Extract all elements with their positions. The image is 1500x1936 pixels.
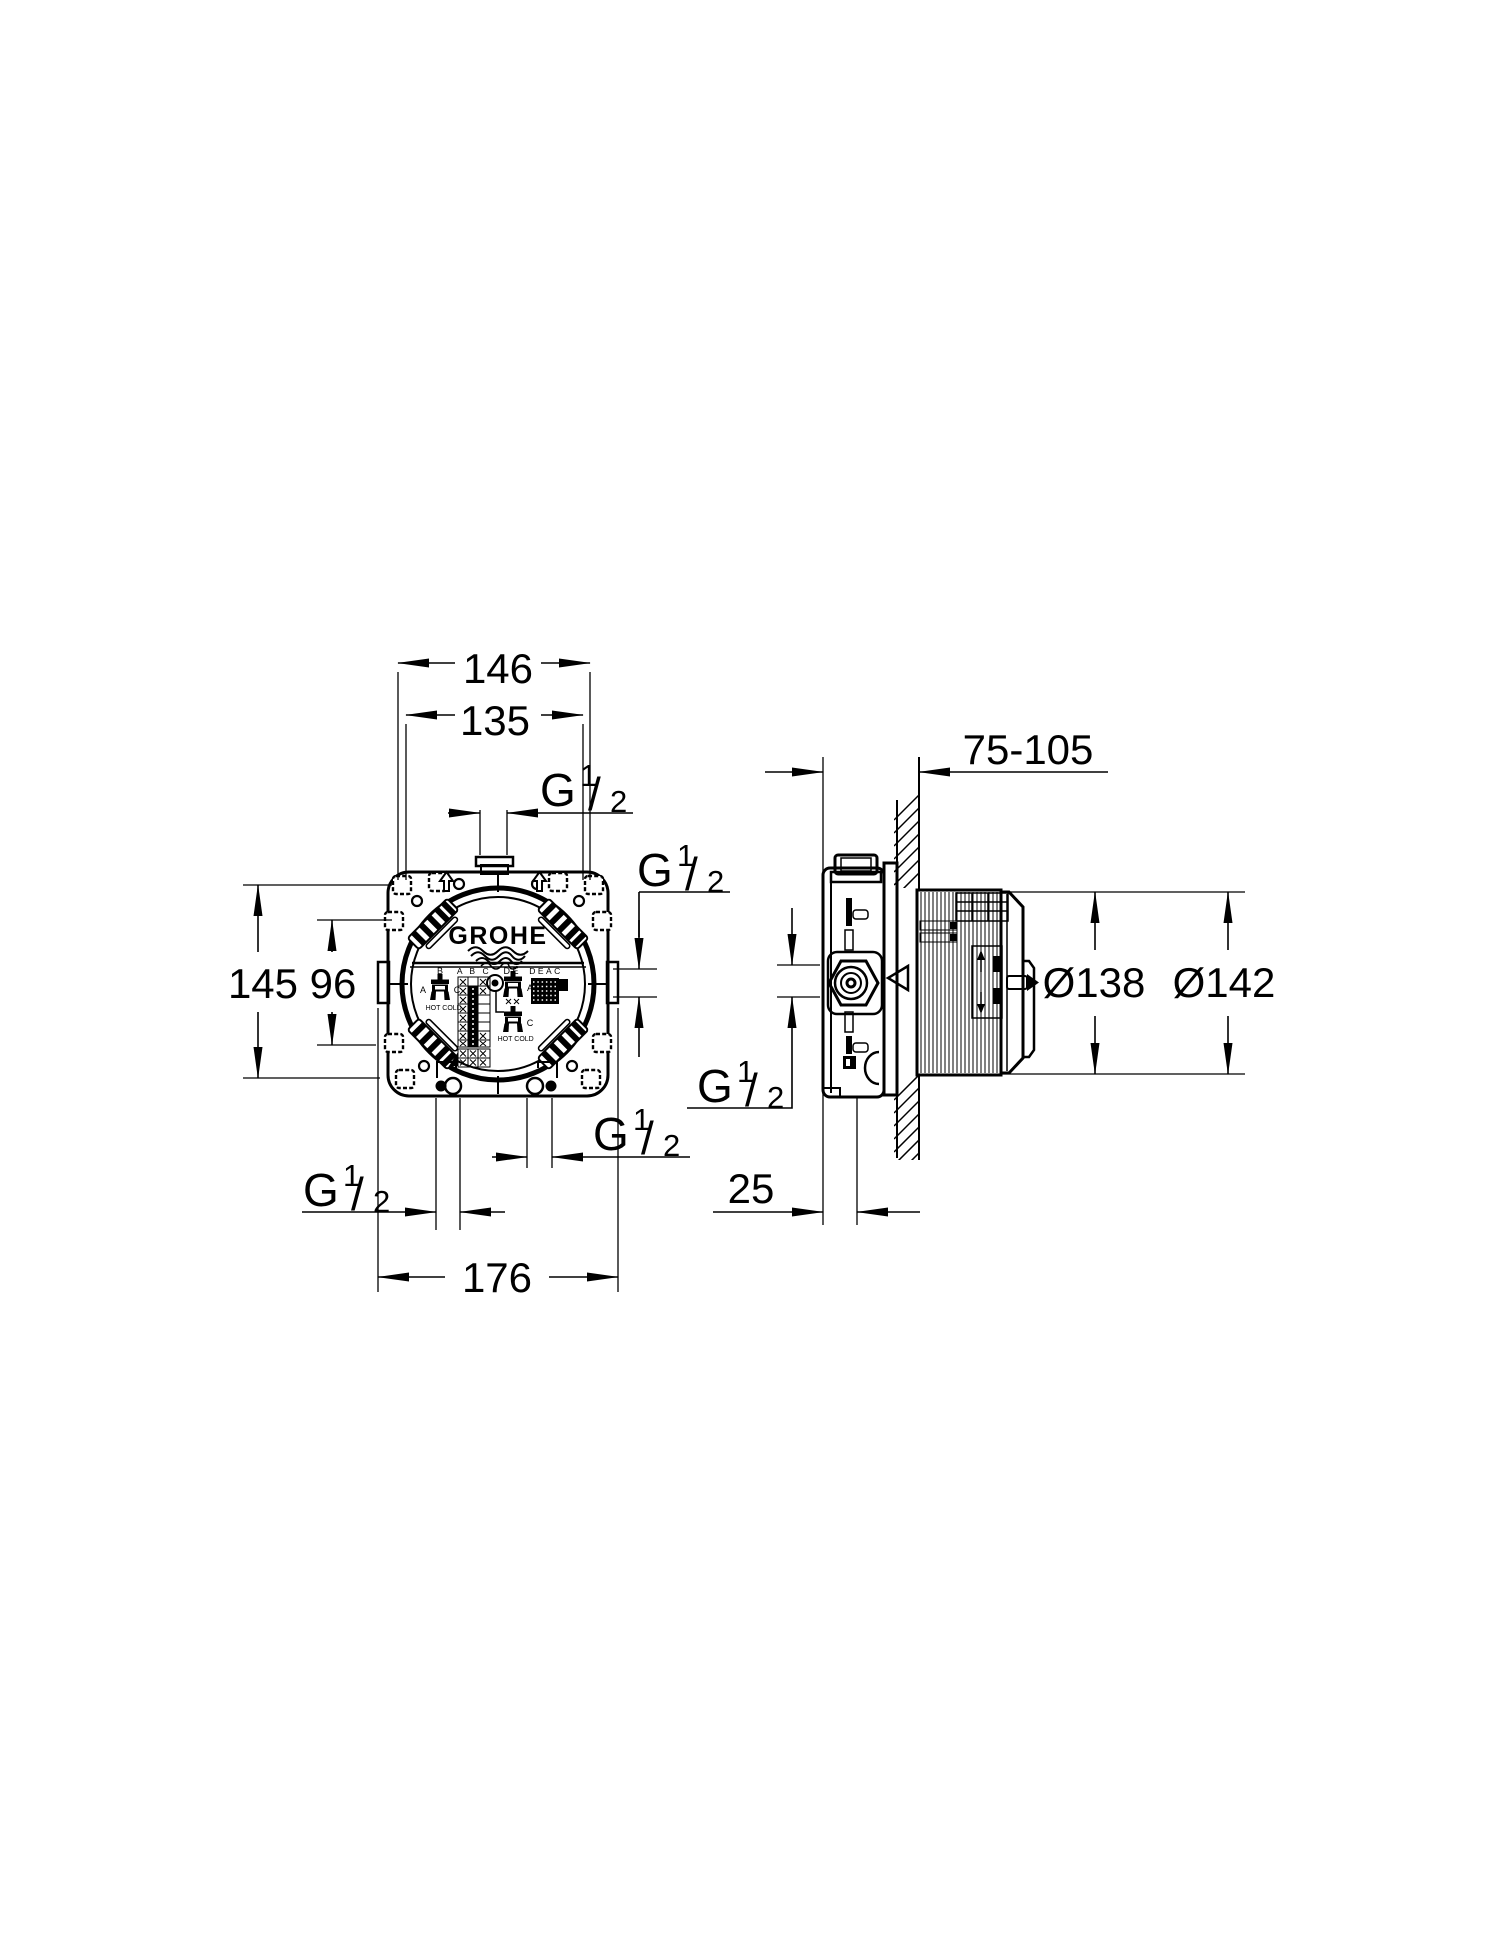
ribbed-body bbox=[917, 890, 1008, 1075]
dim-flange-diameter: Ø142 bbox=[1173, 892, 1276, 1074]
sticker-valve3-hot: HOT bbox=[498, 1036, 514, 1043]
sticker-x-marks bbox=[506, 999, 519, 1004]
svg-text:/: / bbox=[588, 768, 601, 820]
svg-text:2: 2 bbox=[767, 1080, 784, 1115]
sticker-matrix-header: A B C bbox=[457, 966, 491, 976]
sticker-valve1-left: A bbox=[420, 985, 426, 995]
svg-text:/: / bbox=[351, 1168, 364, 1220]
technical-drawing-page: GROHE B A C HOT COLD A B C bbox=[0, 0, 1500, 1936]
thread-label-side-view-port: G 1 / 2 bbox=[697, 1054, 784, 1116]
svg-text:2: 2 bbox=[610, 784, 627, 819]
bottom-port bbox=[445, 1078, 461, 1094]
side-housing-notch bbox=[865, 1052, 879, 1084]
svg-text:/: / bbox=[745, 1064, 758, 1116]
ribs bbox=[921, 892, 997, 1073]
dim-install-depth-range: 75-105 bbox=[765, 726, 1108, 773]
sticker-valve3-right: C bbox=[527, 1018, 534, 1028]
dim-thread-top-port: G 1 / 2 bbox=[448, 758, 633, 855]
side-view bbox=[823, 757, 1039, 1225]
svg-text:2: 2 bbox=[373, 1184, 390, 1219]
thread-label-bottom-left-port: G 1 / 2 bbox=[303, 1158, 390, 1220]
dim-text-d142: Ø142 bbox=[1173, 959, 1276, 1006]
thread-label-bottom-right-port: G 1 / 2 bbox=[593, 1102, 680, 1164]
sticker-dot-block-tab bbox=[559, 979, 568, 991]
dim-text-145: 145 bbox=[228, 960, 298, 1007]
breakout-tab bbox=[582, 1070, 600, 1088]
svg-text:G: G bbox=[637, 844, 673, 896]
bottom-port bbox=[546, 1081, 557, 1092]
thread-label-right-side-port: G 1 / 2 bbox=[637, 838, 724, 900]
svg-text:G: G bbox=[697, 1060, 733, 1112]
screw-hole bbox=[412, 896, 422, 906]
breakout-tab bbox=[593, 912, 611, 930]
breakout-tab bbox=[585, 876, 603, 894]
breakout-tab bbox=[396, 1070, 414, 1088]
svg-text:2: 2 bbox=[707, 864, 724, 899]
screw-hole bbox=[574, 896, 584, 906]
screw-hole bbox=[454, 879, 464, 889]
svg-text:/: / bbox=[685, 848, 698, 900]
dim-text-75-105: 75-105 bbox=[963, 726, 1094, 773]
dim-text-146: 146 bbox=[463, 645, 533, 692]
breakout-tab bbox=[385, 1034, 403, 1052]
dim-height-inner: 96 bbox=[310, 920, 392, 1045]
dimensions: 146 135 G 1 / 2 bbox=[228, 645, 1275, 1301]
sticker-valve1-cold: COLD bbox=[442, 1005, 461, 1012]
sticker-block-header: DEAC bbox=[529, 966, 563, 976]
screw-hole bbox=[419, 1061, 429, 1071]
dim-text-d138: Ø138 bbox=[1043, 959, 1146, 1006]
dim-front-depth: 25 bbox=[713, 1098, 920, 1225]
dim-mount-hole-spacing-outer: 146 bbox=[398, 645, 590, 880]
breakout-tab bbox=[393, 876, 411, 894]
grohe-rapido-smartbox-dimension-drawing: GROHE B A C HOT COLD A B C bbox=[0, 0, 1500, 1936]
svg-text:/: / bbox=[641, 1112, 654, 1164]
front-view: GROHE B A C HOT COLD A B C bbox=[378, 857, 618, 1096]
valve-icon bbox=[430, 974, 450, 1000]
brand-text: GROHE bbox=[448, 922, 547, 950]
screw-hole bbox=[567, 1061, 577, 1071]
svg-text:G: G bbox=[540, 764, 576, 816]
svg-text:G: G bbox=[303, 1164, 339, 1216]
svg-text:2: 2 bbox=[663, 1128, 680, 1163]
svg-text:G: G bbox=[593, 1108, 629, 1160]
valve-icon bbox=[503, 1006, 523, 1032]
center-screw-dot bbox=[492, 980, 499, 987]
dim-text-135: 135 bbox=[460, 697, 530, 744]
breakout-tab bbox=[549, 873, 567, 891]
sticker-valve3-cold: COLD bbox=[514, 1036, 533, 1043]
sticker-valve1-hot: HOT bbox=[426, 1005, 442, 1012]
dim-overall-width: 176 bbox=[378, 1008, 618, 1301]
bottom-port bbox=[527, 1078, 543, 1094]
dim-thread-side-view-port: G 1 / 2 bbox=[687, 908, 820, 1116]
dim-text-96: 96 bbox=[310, 960, 357, 1007]
breakout-tab bbox=[593, 1034, 611, 1052]
breakout-tab bbox=[385, 912, 403, 930]
dim-thread-right-side-port: G 1 / 2 bbox=[613, 838, 730, 1057]
back-flange bbox=[1001, 892, 1039, 1073]
dim-thread-bottom-right-port: G 1 / 2 bbox=[492, 1098, 690, 1168]
dim-thread-bottom-left-port: G 1 / 2 bbox=[302, 1098, 505, 1230]
dim-text-25: 25 bbox=[728, 1165, 775, 1212]
dim-text-176: 176 bbox=[462, 1254, 532, 1301]
